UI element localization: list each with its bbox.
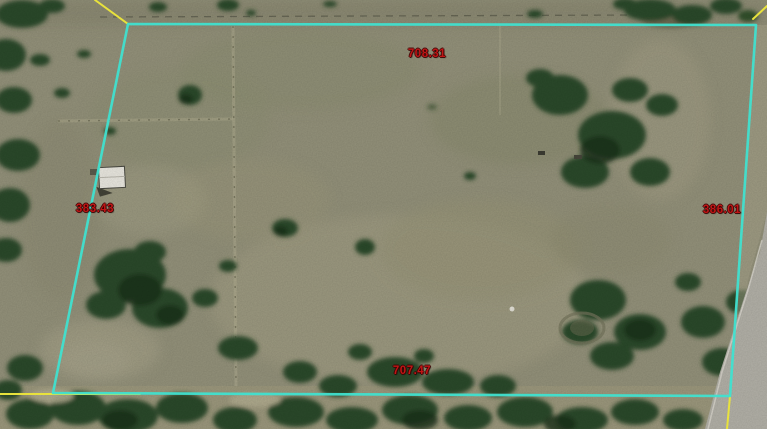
photo-grain-overlay: [0, 0, 767, 429]
aerial-basemap: [0, 0, 767, 429]
aerial-map-view[interactable]: 708.31 707.47 383.43 386.01: [0, 0, 767, 429]
